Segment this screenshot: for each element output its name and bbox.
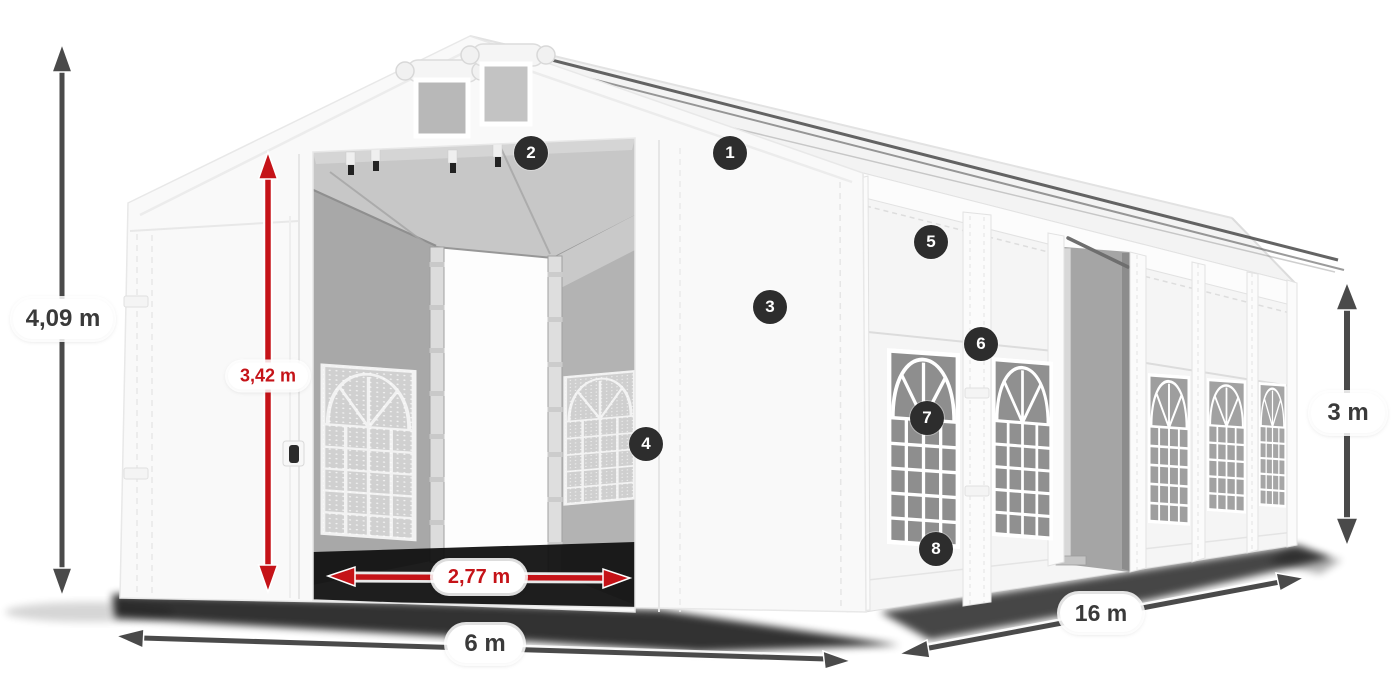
callout-3[interactable]: 3 <box>753 290 787 324</box>
callout-2[interactable]: 2 <box>514 136 548 170</box>
front-opening-interior <box>313 130 635 620</box>
callout-6[interactable]: 6 <box>964 327 998 361</box>
dimension-label-entrance-width: 2,77 m <box>433 561 525 593</box>
tent-illustration <box>0 0 1400 700</box>
side-window-4 <box>1208 380 1245 512</box>
side-window-5 <box>1260 383 1285 506</box>
interior-mesh-window-right <box>565 371 635 504</box>
dimension-label-inner-height: 3,42 m <box>228 363 308 390</box>
side-window-2 <box>994 359 1051 538</box>
callout-5[interactable]: 5 <box>914 225 948 259</box>
dimension-label-width: 6 m <box>447 625 523 663</box>
callout-4[interactable]: 4 <box>629 427 663 461</box>
tent-dimension-diagram: 4,09 m 3,42 m 2,77 m 6 m 16 m 3 m 1 2 3 … <box>0 0 1400 700</box>
side-window-1 <box>889 350 958 546</box>
interior-mesh-window-left <box>323 365 414 539</box>
side-entrance-opening <box>1056 238 1130 572</box>
callout-8[interactable]: 8 <box>919 532 953 566</box>
dimension-label-total-height: 4,09 m <box>13 299 113 339</box>
dimension-label-side-height: 3 m <box>1311 393 1385 433</box>
side-window-3 <box>1149 375 1188 524</box>
door-handle <box>283 441 304 466</box>
callout-1[interactable]: 1 <box>713 136 747 170</box>
dimension-label-length: 16 m <box>1060 594 1142 632</box>
callout-7[interactable]: 7 <box>910 401 944 435</box>
